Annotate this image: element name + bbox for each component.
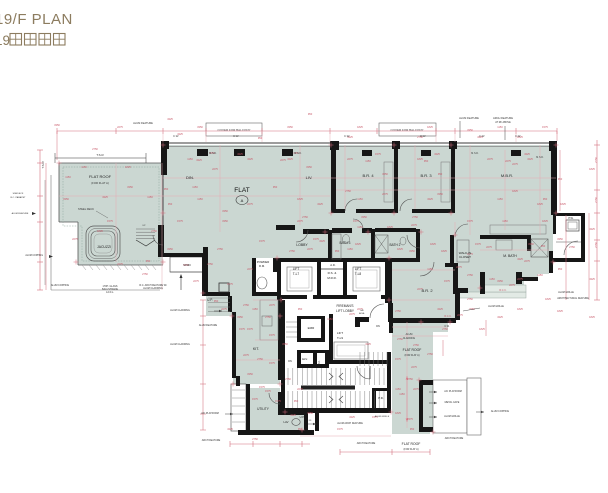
svg-text:1150: 1150: [489, 277, 495, 281]
svg-text:2750: 2750: [289, 249, 295, 253]
svg-text:2275: 2275: [487, 157, 493, 161]
svg-text:(FOR FLAT A): (FOR FLAT A): [403, 448, 418, 451]
svg-text:2750: 2750: [467, 297, 473, 301]
svg-text:2750: 2750: [207, 262, 213, 266]
svg-text:ALUM CLADDING: ALUM CLADDING: [170, 309, 190, 312]
svg-text:2750: 2750: [594, 157, 598, 163]
svg-text:950: 950: [438, 172, 443, 176]
svg-text:1150: 1150: [399, 392, 405, 396]
svg-text:2750: 2750: [92, 147, 98, 151]
svg-text:M.S.D.: M.S.D.: [471, 152, 479, 155]
svg-text:2750: 2750: [412, 215, 418, 219]
svg-text:3350: 3350: [528, 242, 534, 246]
svg-text:1825: 1825: [355, 242, 361, 246]
svg-text:2275: 2275: [509, 283, 515, 287]
svg-text:1575: 1575: [269, 361, 275, 365]
svg-text:KIT.: KIT.: [253, 347, 259, 351]
svg-text:950: 950: [294, 399, 299, 403]
svg-text:M. BATH: M. BATH: [503, 254, 517, 258]
svg-text:(FOR FLAT A): (FOR FLAT A): [404, 354, 419, 357]
svg-text:1825: 1825: [589, 315, 595, 319]
svg-text:4325: 4325: [287, 157, 293, 161]
svg-text:1825: 1825: [430, 242, 436, 246]
svg-text:3350: 3350: [306, 165, 312, 169]
svg-text:2750: 2750: [285, 377, 291, 381]
svg-text:1825: 1825: [125, 165, 131, 169]
svg-text:1825: 1825: [479, 327, 485, 331]
svg-text:R.C.C.: R.C.C.: [499, 289, 507, 292]
svg-text:4325: 4325: [227, 427, 233, 431]
svg-text:1825: 1825: [517, 307, 523, 311]
svg-text:UTILITY: UTILITY: [257, 407, 270, 411]
svg-text:1825: 1825: [397, 247, 403, 251]
svg-text:ALUM GRILLE: ALUM GRILLE: [375, 415, 390, 418]
svg-text:950: 950: [335, 249, 340, 253]
svg-text:1150: 1150: [327, 317, 333, 321]
svg-text:3350: 3350: [437, 192, 443, 196]
svg-text:AT RF ABOVE: AT RF ABOVE: [495, 121, 511, 124]
svg-text:1575: 1575: [259, 239, 265, 243]
svg-text:2750: 2750: [265, 315, 271, 319]
svg-text:U.P.: U.P.: [300, 415, 305, 419]
svg-text:1150: 1150: [497, 125, 503, 129]
svg-text:950: 950: [541, 244, 546, 248]
svg-text:HB: HB: [360, 310, 364, 312]
svg-text:C.W.: C.W.: [515, 134, 521, 138]
svg-text:4325: 4325: [319, 239, 325, 243]
svg-text:4325: 4325: [317, 202, 323, 206]
svg-text:1575: 1575: [407, 417, 413, 421]
svg-text:4325: 4325: [365, 342, 371, 346]
svg-text:1150: 1150: [357, 225, 363, 229]
svg-text:3350: 3350: [222, 209, 228, 213]
svg-text:VOID: VOID: [183, 263, 191, 267]
svg-text:ALUM COPPING: ALUM COPPING: [25, 254, 43, 257]
svg-text:1825: 1825: [387, 225, 393, 229]
svg-text:4325: 4325: [434, 152, 440, 156]
svg-text:3350: 3350: [287, 125, 293, 129]
svg-text:C.W.: C.W.: [479, 134, 485, 138]
svg-text:T-L7: T-L7: [293, 272, 300, 276]
svg-text:4325: 4325: [167, 117, 173, 121]
svg-text:4325: 4325: [102, 195, 108, 199]
svg-text:950: 950: [298, 307, 303, 311]
svg-text:ALUM FEATURE: ALUM FEATURE: [133, 121, 153, 125]
svg-text:4325: 4325: [437, 307, 443, 311]
svg-text:3350: 3350: [127, 185, 133, 189]
svg-text:2275: 2275: [505, 159, 511, 163]
svg-text:SPA DECK: SPA DECK: [13, 192, 24, 195]
svg-text:A.F.F.L.: A.F.F.L.: [106, 291, 114, 294]
svg-text:1575: 1575: [259, 385, 265, 389]
svg-text:1825: 1825: [357, 125, 363, 129]
svg-text:950: 950: [410, 427, 415, 431]
svg-text:A/C PLATFORM: A/C PLATFORM: [444, 390, 462, 393]
svg-text:LAV: LAV: [283, 420, 288, 424]
svg-text:950: 950: [146, 259, 151, 263]
svg-text:M.S.D.: M.S.D.: [209, 152, 217, 155]
svg-text:4325: 4325: [349, 415, 355, 419]
svg-text:B.R. 3: B.R. 3: [420, 173, 432, 178]
svg-text:M.S.D.: M.S.D.: [536, 156, 544, 159]
svg-text:2750: 2750: [413, 343, 419, 347]
svg-text:1825: 1825: [512, 189, 518, 193]
svg-text:ARCHITECTURAL FEATURE: ARCHITECTURAL FEATURE: [557, 297, 589, 300]
svg-text:ARCH FEATURE: ARCH FEATURE: [202, 439, 221, 442]
svg-text:UP: UP: [381, 360, 385, 363]
svg-text:T.S.R: T.S.R: [96, 153, 104, 157]
svg-text:3350: 3350: [247, 372, 253, 376]
svg-text:M.B.R.: M.B.R.: [501, 173, 513, 178]
svg-text:2275: 2275: [524, 259, 530, 263]
svg-text:2750: 2750: [302, 215, 308, 219]
svg-text:4325: 4325: [497, 315, 503, 319]
svg-text:2275: 2275: [221, 307, 227, 311]
svg-text:1825: 1825: [589, 167, 595, 171]
svg-text:LIFT LOBBY: LIFT LOBBY: [336, 309, 355, 313]
svg-text:1150: 1150: [252, 307, 258, 311]
svg-text:1575: 1575: [252, 397, 258, 401]
svg-text:1825: 1825: [560, 202, 566, 206]
svg-text:4325: 4325: [524, 152, 530, 156]
svg-text:A/C PLATFORM: A/C PLATFORM: [201, 412, 219, 415]
svg-text:FLAT ROOF: FLAT ROOF: [403, 348, 422, 352]
svg-text:1825: 1825: [97, 229, 103, 233]
svg-text:2750: 2750: [151, 229, 157, 233]
svg-text:1575: 1575: [107, 219, 113, 223]
svg-text:1575: 1575: [444, 279, 450, 283]
svg-text:2275: 2275: [413, 387, 419, 391]
svg-text:R.M.: R.M.: [259, 264, 265, 268]
svg-text:3350: 3350: [282, 342, 288, 346]
svg-text:950: 950: [558, 177, 563, 181]
svg-text:CLOSET: CLOSET: [459, 255, 471, 259]
svg-text:19/F PLAN: 19/F PLAN: [0, 11, 73, 28]
svg-text:2275: 2275: [117, 262, 123, 266]
svg-text:ARCH FEATURE: ARCH FEATURE: [445, 437, 464, 440]
svg-text:1575: 1575: [177, 219, 183, 223]
svg-text:3350: 3350: [222, 219, 228, 223]
svg-text:2750: 2750: [345, 189, 351, 193]
svg-text:950: 950: [214, 299, 219, 303]
svg-text:2750: 2750: [243, 303, 249, 307]
svg-text:A.D.: A.D.: [330, 263, 336, 267]
svg-text:W.M.C.: W.M.C.: [318, 360, 321, 368]
svg-text:COVER FOR BALCONY: COVER FOR BALCONY: [390, 128, 423, 132]
svg-text:1575: 1575: [542, 125, 548, 129]
svg-text:950: 950: [424, 159, 429, 163]
svg-text:UP: UP: [142, 225, 146, 227]
svg-text:4325: 4325: [290, 413, 296, 417]
svg-text:1150: 1150: [347, 247, 353, 251]
svg-text:M.R.R.: M.R.R.: [327, 276, 336, 280]
svg-text:1575: 1575: [265, 389, 271, 393]
svg-text:P.D.: P.D.: [378, 396, 384, 400]
svg-text:1575: 1575: [247, 327, 253, 331]
svg-text:C.W.: C.W.: [444, 325, 450, 328]
svg-text:3350: 3350: [557, 237, 563, 241]
svg-text:3350: 3350: [54, 123, 60, 127]
svg-text:DIN.: DIN.: [186, 175, 194, 180]
svg-text:3350: 3350: [237, 315, 243, 319]
svg-text:R.C. PARAPET: R.C. PARAPET: [10, 196, 26, 199]
svg-text:2750: 2750: [142, 272, 148, 276]
svg-text:2275: 2275: [269, 303, 275, 307]
svg-text:3350: 3350: [497, 279, 503, 283]
svg-text:ARCH FEATURE: ARCH FEATURE: [493, 116, 513, 120]
svg-text:ALUM GRILLE: ALUM GRILLE: [444, 415, 460, 418]
svg-text:1150: 1150: [65, 175, 71, 179]
svg-text:C.W.: C.W.: [420, 134, 426, 138]
svg-text:3350: 3350: [409, 249, 415, 253]
svg-text:BATH 3: BATH 3: [340, 241, 351, 245]
svg-text:ALUM FEATURE: ALUM FEATURE: [199, 324, 218, 327]
svg-text:1150: 1150: [81, 165, 87, 169]
svg-text:950: 950: [558, 267, 563, 271]
svg-text:ALUM CLADDING: ALUM CLADDING: [170, 343, 190, 346]
svg-text:ALUM ARCH FEATURE: ALUM ARCH FEATURE: [337, 422, 363, 425]
svg-text:1825: 1825: [395, 411, 401, 415]
svg-text:1150: 1150: [537, 273, 543, 277]
svg-text:950: 950: [168, 202, 173, 206]
svg-text:2750: 2750: [569, 245, 575, 249]
svg-text:2275: 2275: [486, 245, 492, 249]
svg-text:ALUM GRILLE: ALUM GRILLE: [488, 305, 504, 308]
svg-text:LIFT: LIFT: [355, 267, 362, 271]
svg-text:M.S.D.: M.S.D.: [294, 152, 302, 155]
svg-text:2275: 2275: [212, 167, 218, 171]
svg-text:T.S.R: T.S.R: [41, 161, 45, 169]
svg-text:950: 950: [258, 136, 263, 140]
svg-text:2275: 2275: [411, 223, 417, 227]
svg-text:FIREMAN'S: FIREMAN'S: [336, 304, 353, 308]
svg-text:1150: 1150: [197, 197, 203, 201]
svg-text:B.R. 2: B.R. 2: [421, 288, 433, 293]
svg-text:1150: 1150: [395, 387, 401, 391]
svg-text:2275: 2275: [512, 162, 518, 166]
svg-text:950: 950: [543, 197, 548, 201]
svg-text:COVER FOR BALCONY: COVER FOR BALCONY: [217, 128, 250, 132]
svg-text:4325: 4325: [427, 197, 433, 201]
svg-text:2750: 2750: [257, 357, 263, 361]
svg-text:1150: 1150: [187, 157, 193, 161]
svg-text:METAL GATE: METAL GATE: [445, 401, 460, 404]
svg-text:1150: 1150: [427, 267, 433, 271]
svg-text:AT.HL: AT.HL: [359, 312, 366, 315]
svg-text:ELV.: ELV.: [302, 357, 308, 361]
svg-text:1575: 1575: [227, 282, 233, 286]
svg-text:3350: 3350: [467, 128, 473, 132]
svg-text:3350: 3350: [63, 197, 69, 201]
svg-text:3350: 3350: [361, 215, 367, 219]
svg-text:19: 19: [0, 33, 10, 48]
svg-text:2275: 2275: [382, 192, 388, 196]
svg-text:2275: 2275: [193, 279, 199, 283]
svg-text:950: 950: [308, 112, 313, 116]
svg-text:3350: 3350: [307, 411, 313, 415]
svg-text:ALUM GRILLE: ALUM GRILLE: [558, 291, 574, 294]
svg-text:T-L8: T-L8: [355, 272, 362, 276]
svg-text:4325: 4325: [196, 158, 202, 162]
svg-text:2275: 2275: [247, 202, 253, 206]
svg-text:2750: 2750: [407, 377, 413, 381]
svg-text:1150: 1150: [502, 219, 508, 223]
svg-text:1575: 1575: [239, 327, 245, 331]
svg-text:4325: 4325: [247, 157, 253, 161]
svg-text:2275: 2275: [72, 237, 78, 241]
svg-text:3350: 3350: [382, 172, 388, 176]
svg-text:2275: 2275: [280, 158, 286, 162]
svg-text:1825: 1825: [557, 309, 563, 313]
svg-text:2750: 2750: [252, 437, 258, 441]
svg-text:2275: 2275: [297, 387, 303, 391]
svg-text:2750: 2750: [217, 247, 223, 251]
svg-text:2750: 2750: [395, 309, 401, 313]
svg-text:2275: 2275: [247, 267, 253, 271]
svg-text:LIFT: LIFT: [337, 331, 343, 335]
svg-text:2275: 2275: [517, 277, 523, 281]
svg-text:C.W.: C.W.: [173, 134, 179, 138]
svg-text:1825: 1825: [417, 157, 423, 161]
svg-text:4325: 4325: [527, 157, 533, 161]
svg-text:EMR: EMR: [308, 326, 316, 330]
svg-text:1825: 1825: [537, 202, 543, 206]
svg-text:950: 950: [164, 187, 169, 191]
svg-text:A: A: [241, 198, 244, 203]
svg-text:JACUZZI: JACUZZI: [97, 245, 111, 249]
svg-text:1575: 1575: [395, 357, 401, 361]
svg-text:R.C.C.: R.C.C.: [444, 315, 452, 318]
svg-text:4325: 4325: [589, 227, 595, 231]
svg-text:1575: 1575: [375, 152, 381, 156]
svg-text:T-L9: T-L9: [337, 336, 343, 340]
svg-text:LIV.: LIV.: [306, 175, 313, 180]
svg-text:1575: 1575: [353, 219, 359, 223]
svg-text:4325: 4325: [517, 257, 523, 261]
svg-text:U.P.: U.P.: [207, 298, 213, 302]
svg-text:LOBBY: LOBBY: [296, 243, 308, 247]
svg-text:1150: 1150: [192, 185, 198, 189]
svg-text:B.R. 4: B.R. 4: [362, 173, 374, 178]
svg-text:1825: 1825: [441, 249, 447, 253]
svg-text:FLAT: FLAT: [234, 187, 249, 194]
svg-text:ALUM COPPING: ALUM COPPING: [491, 410, 509, 413]
svg-text:1575: 1575: [269, 333, 275, 337]
svg-text:1575: 1575: [475, 242, 481, 246]
svg-text:2275: 2275: [457, 313, 463, 317]
svg-text:R.S. &: R.S. &: [328, 271, 337, 275]
svg-text:1575: 1575: [467, 219, 473, 223]
svg-text:ALUM COPPING: ALUM COPPING: [51, 284, 69, 287]
svg-text:FLAT ROOF: FLAT ROOF: [402, 442, 421, 446]
svg-text:2275: 2275: [243, 353, 249, 357]
svg-text:(FOR FLAT A): (FOR FLAT A): [91, 181, 109, 185]
svg-text:2750: 2750: [594, 197, 598, 203]
svg-text:1150: 1150: [147, 195, 153, 199]
svg-text:DN: DN: [288, 360, 292, 363]
svg-text:950: 950: [273, 185, 278, 189]
svg-text:1825: 1825: [427, 125, 433, 129]
svg-text:2275: 2275: [117, 125, 123, 129]
svg-text:2750: 2750: [467, 273, 473, 277]
svg-text:1825: 1825: [542, 219, 548, 223]
svg-text:C.W.: C.W.: [233, 134, 239, 138]
svg-text:4325: 4325: [237, 152, 243, 156]
svg-text:2275: 2275: [307, 247, 313, 251]
svg-text:DN: DN: [376, 325, 380, 328]
svg-text:1575: 1575: [275, 399, 281, 403]
svg-text:3350: 3350: [167, 247, 173, 251]
svg-text:ALUM CLADDING: ALUM CLADDING: [143, 287, 163, 290]
svg-text:ARCH FEATURE: ARCH FEATURE: [357, 442, 376, 445]
svg-text:1150: 1150: [497, 197, 503, 201]
svg-text:2750: 2750: [427, 352, 433, 356]
svg-text:ALUM: ALUM: [406, 333, 413, 336]
svg-text:4325: 4325: [589, 277, 595, 281]
svg-text:1825: 1825: [545, 297, 551, 301]
svg-text:2275: 2275: [297, 219, 303, 223]
svg-text:ALUM FEATURE: ALUM FEATURE: [12, 212, 29, 215]
svg-text:1575: 1575: [337, 427, 343, 431]
svg-text:1150: 1150: [365, 159, 371, 163]
svg-text:P.W.: P.W.: [568, 216, 573, 220]
svg-text:ALUM FEATURE: ALUM FEATURE: [459, 116, 479, 120]
svg-text:2750: 2750: [594, 242, 598, 248]
svg-text:CLADDING: CLADDING: [403, 337, 415, 340]
svg-text:STEEL DECK: STEEL DECK: [78, 207, 94, 211]
svg-text:3350: 3350: [197, 125, 203, 129]
svg-text:LIFT: LIFT: [293, 267, 300, 271]
svg-text:2275: 2275: [411, 365, 417, 369]
svg-text:BATH 2: BATH 2: [390, 243, 401, 247]
svg-text:FLAT ROOF: FLAT ROOF: [89, 174, 112, 179]
svg-text:1825: 1825: [297, 197, 303, 201]
svg-text:2275: 2275: [456, 265, 462, 269]
svg-text:C.W.: C.W.: [344, 134, 350, 138]
svg-text:2275: 2275: [347, 157, 353, 161]
svg-text:1150: 1150: [357, 197, 363, 201]
